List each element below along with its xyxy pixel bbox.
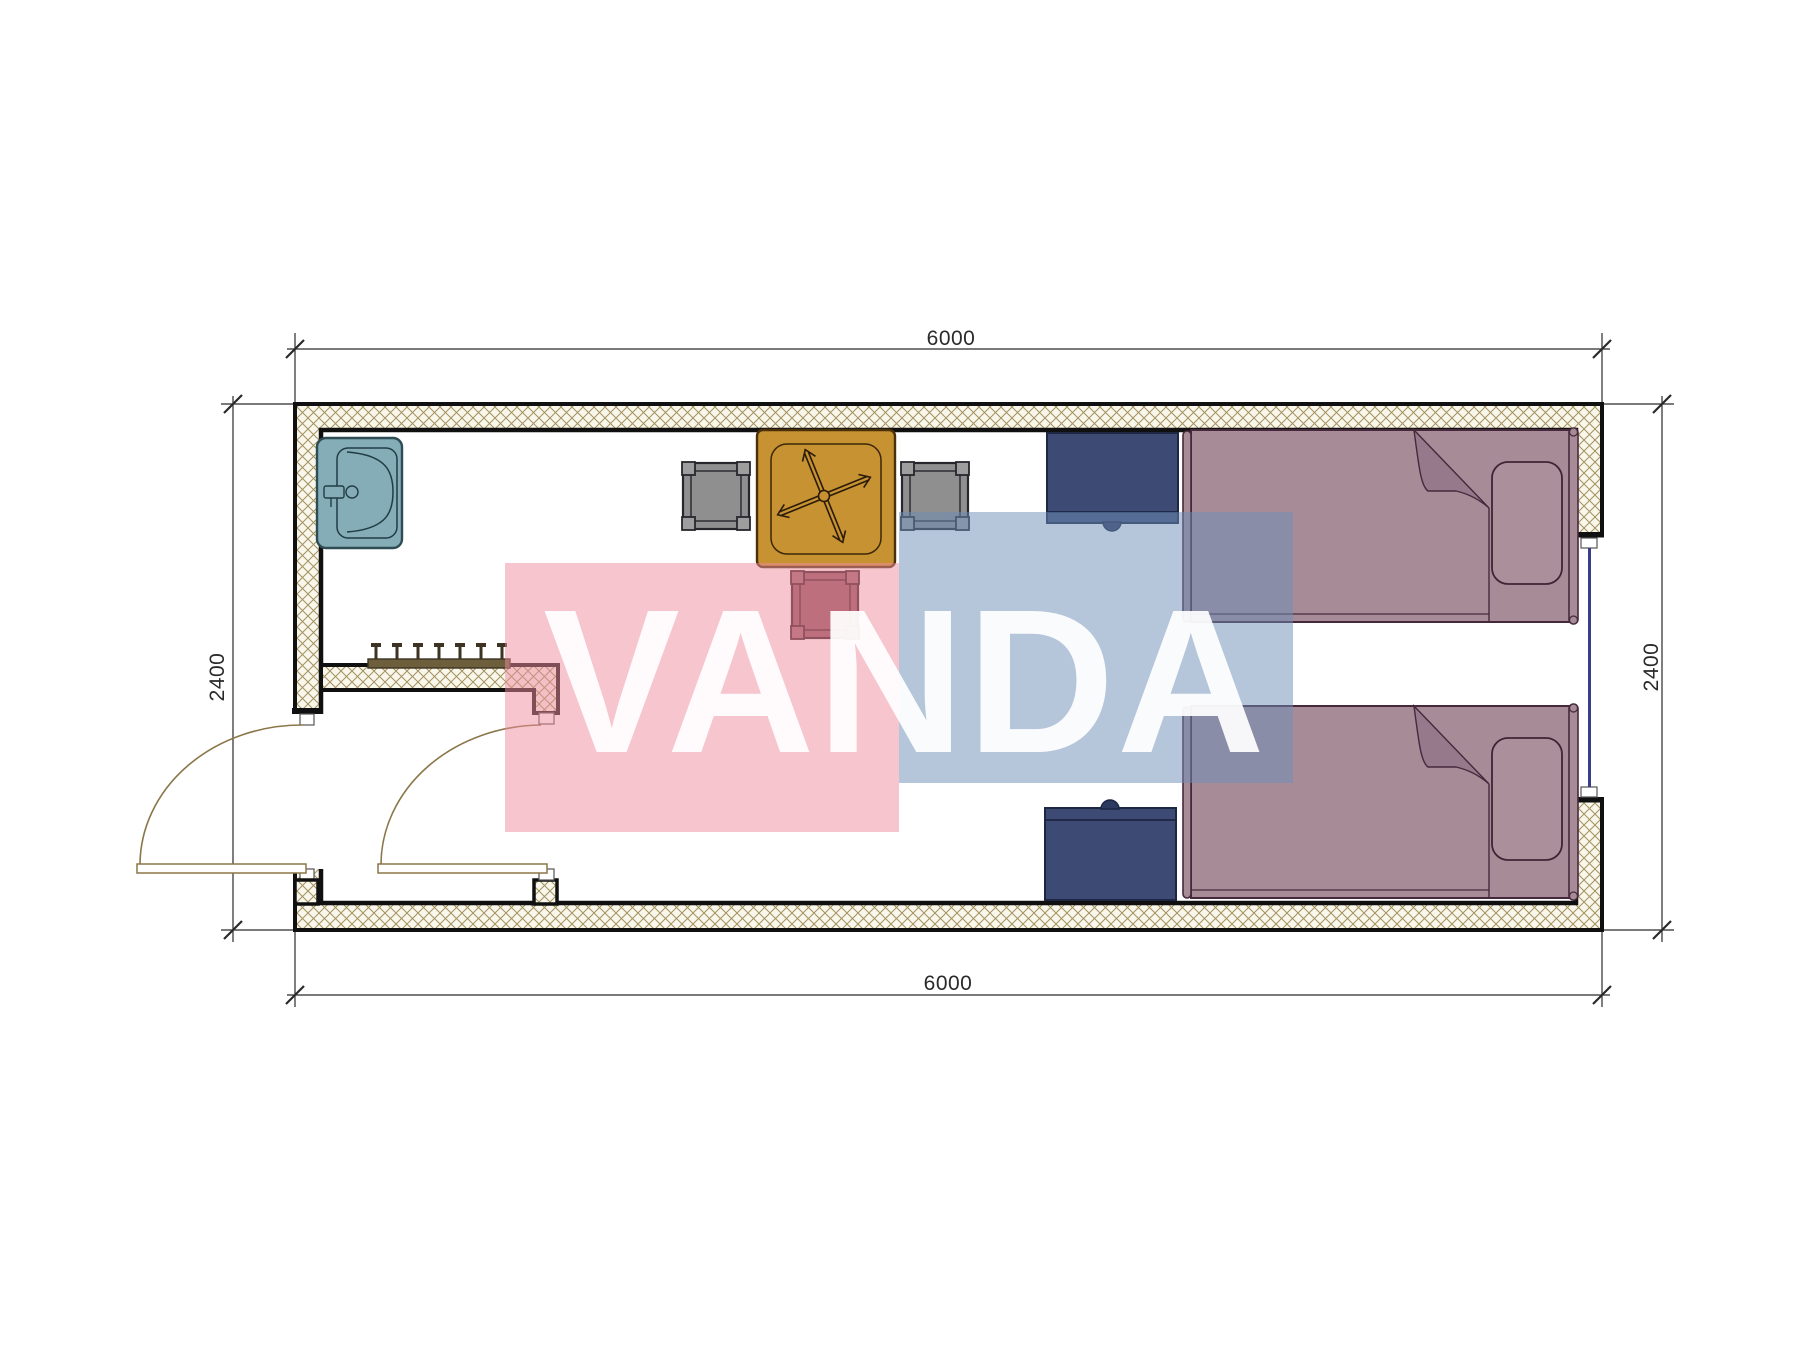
coat-hook-rack	[368, 643, 510, 668]
drain-icon	[346, 486, 358, 498]
watermark: VANDA	[505, 512, 1293, 832]
sink	[317, 438, 402, 548]
dimension-bottom	[286, 932, 1611, 1007]
table	[757, 430, 895, 567]
door-jambs	[295, 869, 557, 904]
knob-icon	[1101, 800, 1119, 809]
floor-plan-drawing: 6000 6000 2400 2400	[0, 0, 1800, 1350]
faucet-icon	[324, 486, 344, 498]
dimension-label-bottom: 6000	[924, 972, 973, 995]
watermark-text: VANDA	[543, 567, 1267, 796]
dimension-left	[221, 395, 297, 942]
stool-left	[682, 462, 750, 530]
floor-plan-page: 6000 6000 2400 2400	[0, 0, 1800, 1350]
dimension-label-right: 2400	[1640, 643, 1663, 692]
left-door-opening	[290, 708, 325, 880]
dimension-label-top: 6000	[927, 327, 976, 350]
desk-bottom	[1045, 800, 1176, 900]
entry-door	[137, 725, 306, 873]
dimension-label-left: 2400	[206, 653, 229, 702]
